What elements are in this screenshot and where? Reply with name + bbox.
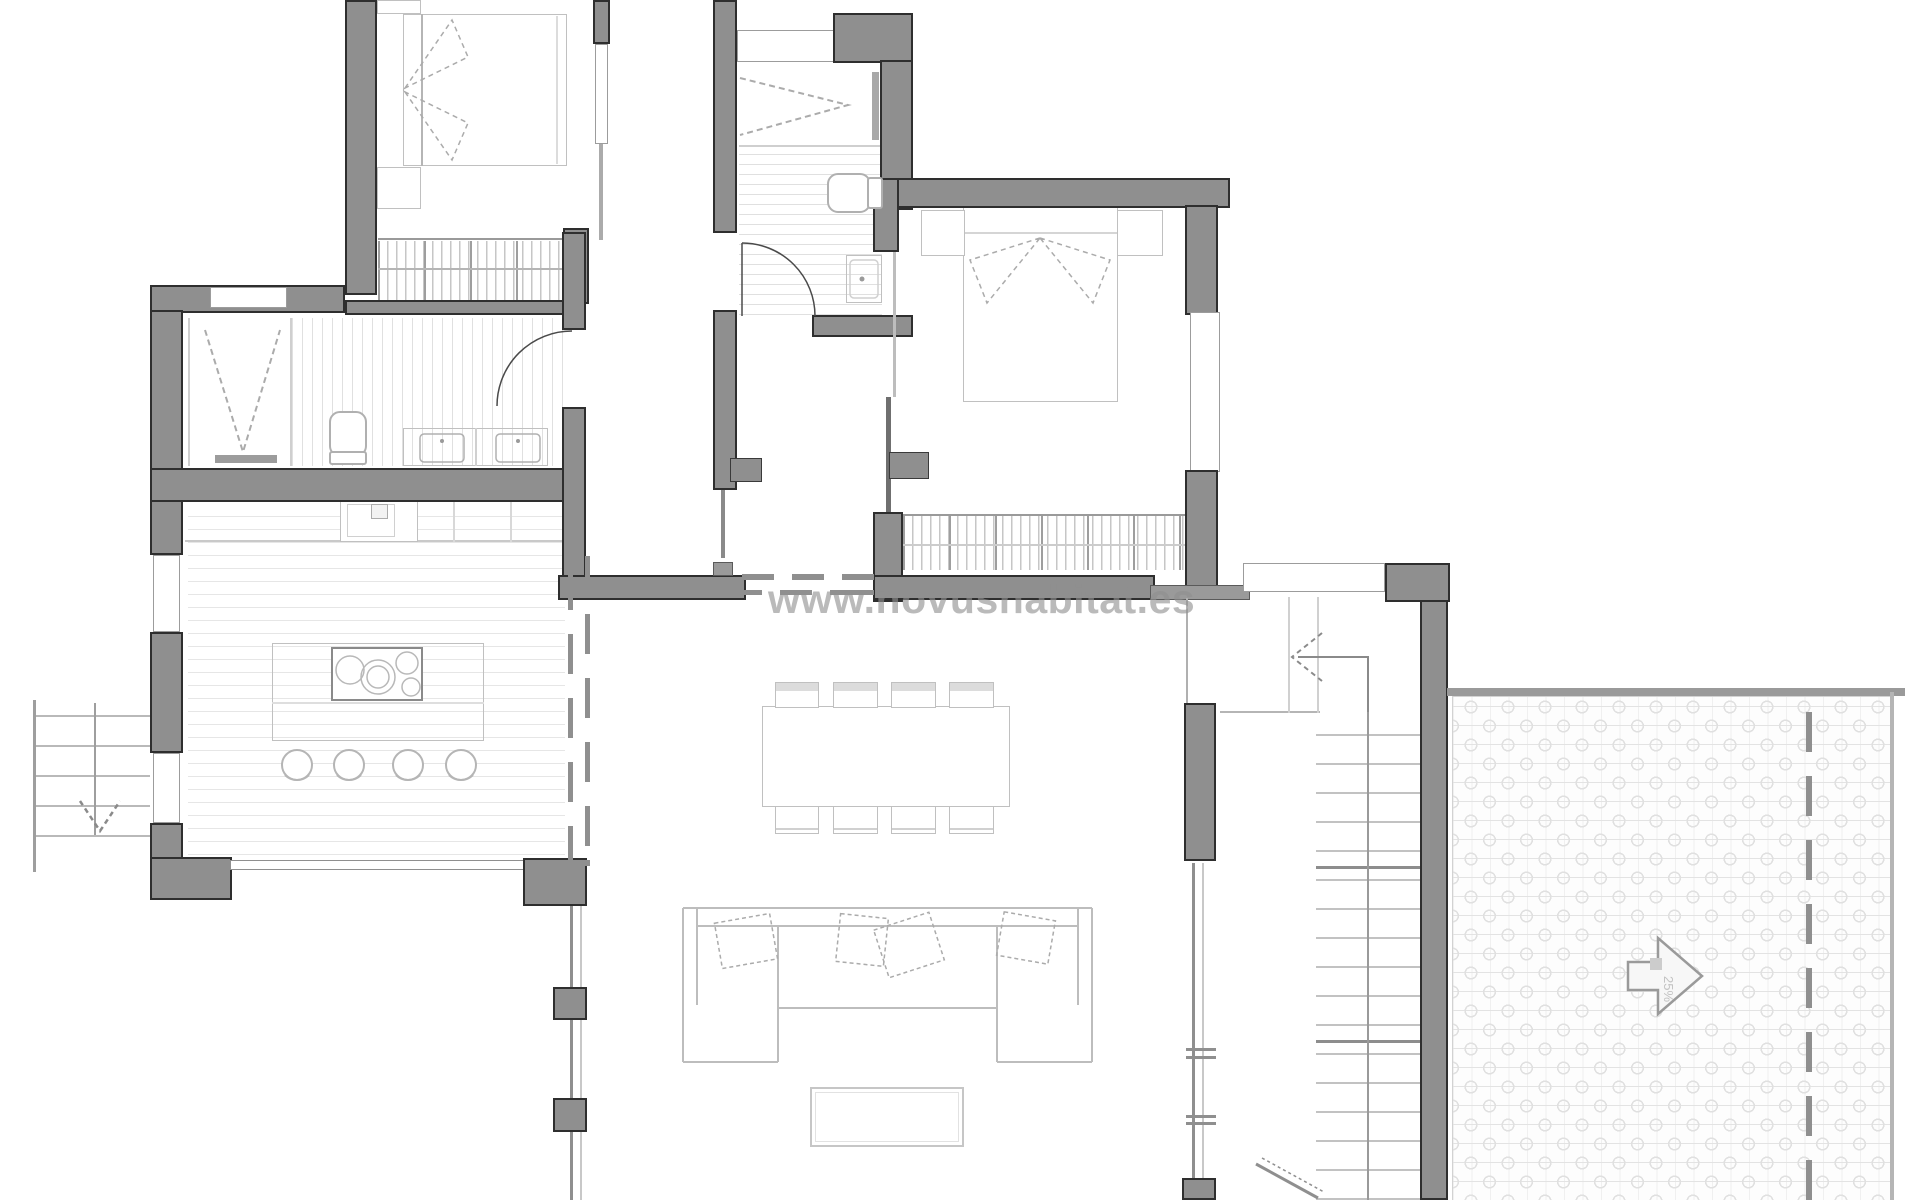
wall-left-mid [150,632,183,753]
door-bathroom-top [742,243,815,316]
bedroom2-wardrobe-rail-line [903,544,1185,546]
bedroom2-pillows [970,238,1110,303]
kitchen-floor-hatch [188,505,565,855]
kitchen-cooktop [331,647,423,701]
pillow [970,238,1040,303]
chair-back [892,828,935,830]
pillow [997,912,1056,964]
arrow-shaft [1298,657,1368,712]
kitchen-faucet [371,504,388,519]
door-arc [497,331,572,406]
bathroom-top-sink [846,255,882,303]
kitchen-living-dashes-2 [585,556,590,866]
shower2-boundary-line [739,145,884,147]
cooktop-burners [336,652,420,696]
shower-right-edge-line [290,318,292,466]
bedroom1-bed-headboard-line [421,14,423,166]
chair-back [834,683,877,691]
kitchen-cabinet-divider-1 [453,502,455,542]
wall-bedroom2-top [873,178,1230,208]
pillow [836,914,889,967]
bedroom2-wardrobe-hatch [903,516,1185,570]
wall-right-outer [1420,600,1448,1200]
dining-chair [833,806,878,834]
shower-left-edge-line [188,318,190,466]
wall-hall-left-lower [562,407,586,578]
door-leaf-bedroom2 [886,397,891,512]
burner [396,652,418,674]
leaf-line [1256,1164,1318,1198]
dining-table [762,706,1010,807]
bedroom2-nightstand-right [1117,210,1163,256]
bedroom2-wardrobe-top-line [903,514,1185,516]
glass-door-tick [1186,1122,1216,1125]
ext-stair-left-line [33,700,36,872]
glass-door-tick [1186,1048,1216,1051]
shower-top-glass-v [740,78,848,135]
wall-bedroom2-right-upper [1185,205,1218,315]
dining-chair [949,682,994,708]
kitchen-living-dashes-1 [568,556,573,866]
window-kitchen-left-upper [153,555,180,632]
wall-bathtop-left-lower [713,310,737,490]
vanity-divider-line [475,428,477,466]
bedroom1-wardrobe-hatch [378,241,568,301]
arrow-down-icon [80,801,120,831]
faucet-dot [516,439,520,443]
pillow [714,913,777,968]
wall-hall-bottom-notch [713,562,733,576]
stool-backrest [396,775,420,780]
dining-chair [949,806,994,834]
glass-wall-line-outer [570,906,573,1200]
arrow-left-icon [1292,633,1322,681]
kitchen-counter-edge-line [185,540,573,542]
wall-bedroom1-right-top [593,0,610,44]
glass-wall-line-inner [580,906,582,1200]
burner [361,660,395,694]
door-jamb-hall [730,458,762,482]
bar-stool [282,750,312,780]
vanity-counter [403,428,548,466]
wall-face-bedroom2-left [893,252,896,397]
burner [336,656,364,684]
wall-left-bottom-corner-h [150,857,232,900]
sliding-door-kitchen-bottom [230,860,525,870]
kitchen-island-shelf-line [272,702,484,704]
sofa-pillows [714,912,1055,978]
pillow [1040,238,1110,303]
wall-face-corridor [599,144,603,240]
toilet-bathroom-top [828,174,882,298]
window-bathleft-top [210,287,287,308]
wall-bathtop-bottom [812,315,913,337]
kitchen-sink-unit [340,498,418,542]
toilet-bowl [330,412,366,456]
stair-guide-line-2 [1317,597,1319,713]
shower-drain-bar [215,455,277,463]
wall-bedroom1-left [345,0,377,295]
stair-direction-arrow [1292,633,1368,712]
burner [402,678,420,696]
burner-inner [367,666,389,688]
window-bedroom2-right [1190,312,1220,472]
wall-left-bottom-corner-v [150,823,183,900]
door-arc [742,243,815,316]
window-kitchen-left-lower [153,753,180,823]
stool-backrest [285,775,309,780]
stair-guide-line-1 [1288,597,1290,713]
toilet-tank [868,178,882,208]
ext-stair-treads [36,703,150,837]
bedroom1-pillows [405,20,468,160]
chair-back [892,683,935,691]
shower-left-glass-v [205,330,280,452]
faucet-dot [440,439,444,443]
vanity-sinks [420,434,540,462]
stair-glass-door-line-1 [1192,863,1195,1180]
sink-basin [420,434,464,462]
door-jamb-bedroom2 [889,452,929,479]
stair-landing-edge [1220,711,1320,713]
bar-stool [446,750,476,780]
wall-bedroom2-left-upper [873,178,899,252]
bedroom1-bed [403,14,567,166]
glass-door-tick [1186,1056,1216,1059]
dining-chair [891,682,936,708]
stair-treads [1316,713,1420,1200]
wall-bathleft-top [150,285,345,313]
wall-bathleft-kitchen-divider [150,468,573,502]
site-watermark: www.novushabitat.es [768,576,1195,623]
dining-chair [833,682,878,708]
window-corridor-top [595,44,608,144]
wall-hall-left-upper [562,232,586,330]
kitchen-cabinet-divider-2 [510,502,512,542]
chair-back [776,828,818,830]
wall-hall-bottom [558,575,746,600]
bathroom-top-floor-hatch [739,150,882,315]
glass-door-tick [1186,1115,1216,1118]
kitchen-bar-stools [282,750,476,780]
terrace-slope-arrow: 25% [1628,938,1702,1014]
stair-glass-door-line-2 [1202,863,1204,1180]
stair-glass-door-post [1182,1178,1216,1200]
wall-bedroom1-wardrobe-post [563,228,589,304]
sink-drain-dot [860,277,865,282]
arrow-detail-square [1650,958,1662,970]
wall-stair-partition [1184,703,1216,861]
dining-chair [891,806,936,834]
kitchen-sink-basin [347,504,395,537]
bedroom1-bed-blanket-line [556,16,558,164]
toilet-bathroom-left [330,412,366,464]
shower2-glass-panel [872,72,879,140]
arrow-right-icon [1628,938,1702,1014]
chair-back [776,683,818,691]
door-leaf-hall [721,490,725,558]
bar-stool [334,750,364,780]
pillow [405,20,468,88]
stair-tread-dark-2 [1316,1040,1420,1043]
stair-stringer [1367,657,1369,1200]
terrace-dashed-line [1806,700,1812,1200]
wall-kitchen-bottom-corner [523,858,587,906]
bedroom1-nightstand-top [377,0,421,14]
bedroom1-nightstand-bottom [377,167,421,209]
toilet-tank [330,452,366,464]
terrace-right-border [1890,692,1894,1200]
glass-wall-post-1 [553,987,587,1020]
chair-back [834,828,877,830]
terrace-paving [1452,696,1892,1200]
ext-stair-stringer [94,703,96,835]
slope-percentage-label: 25% [1661,976,1676,1002]
glass-wall-post-2 [553,1098,587,1132]
pillow [874,912,945,977]
leaf-hatch-line [1262,1158,1324,1192]
coffee-table [810,1087,964,1147]
window-bathtop [737,30,835,62]
stair-tread-dark-1 [1316,866,1420,869]
bedroom2-bed [963,206,1118,402]
wall-left-upper [150,310,183,555]
bedroom2-nightstand-left [921,210,965,256]
chair-back [950,683,993,691]
wall-bathtop-left-upper [713,0,737,233]
bedroom1-wardrobe-top-line [378,238,568,240]
bedroom1-wardrobe-rail-line [378,268,568,270]
stool-backrest [449,775,473,780]
sofa-sectional [683,908,1092,1062]
pillow [405,92,468,160]
sink-basin [496,434,540,462]
window-stairhall-top [1243,563,1385,592]
coffee-table-inner-line [815,1092,959,1142]
door-bathroom-left [497,331,572,406]
wall-stairhall-top-corner [1385,563,1450,602]
sink-basin [850,260,878,298]
dining-chair [775,682,819,708]
kitchen-island [272,643,484,741]
terrace-top-border [1447,688,1905,696]
bedroom2-bed-headboard-line [963,232,1118,234]
stair-bottom-door-leaf [1256,1158,1324,1198]
stool-backrest [337,775,361,780]
floor-plan-canvas: 25% www.novushabitat.es [0,0,1920,1200]
toilet-bowl [828,174,870,212]
wall-under-wardrobe1 [345,300,573,315]
bar-stool [393,750,423,780]
wall-bathtop-right [880,60,913,210]
wall-bathtop-topright-corner [833,13,913,63]
bathroom-left-floor-hatch [292,318,564,466]
chair-back [950,828,993,830]
dining-chair [775,806,819,834]
